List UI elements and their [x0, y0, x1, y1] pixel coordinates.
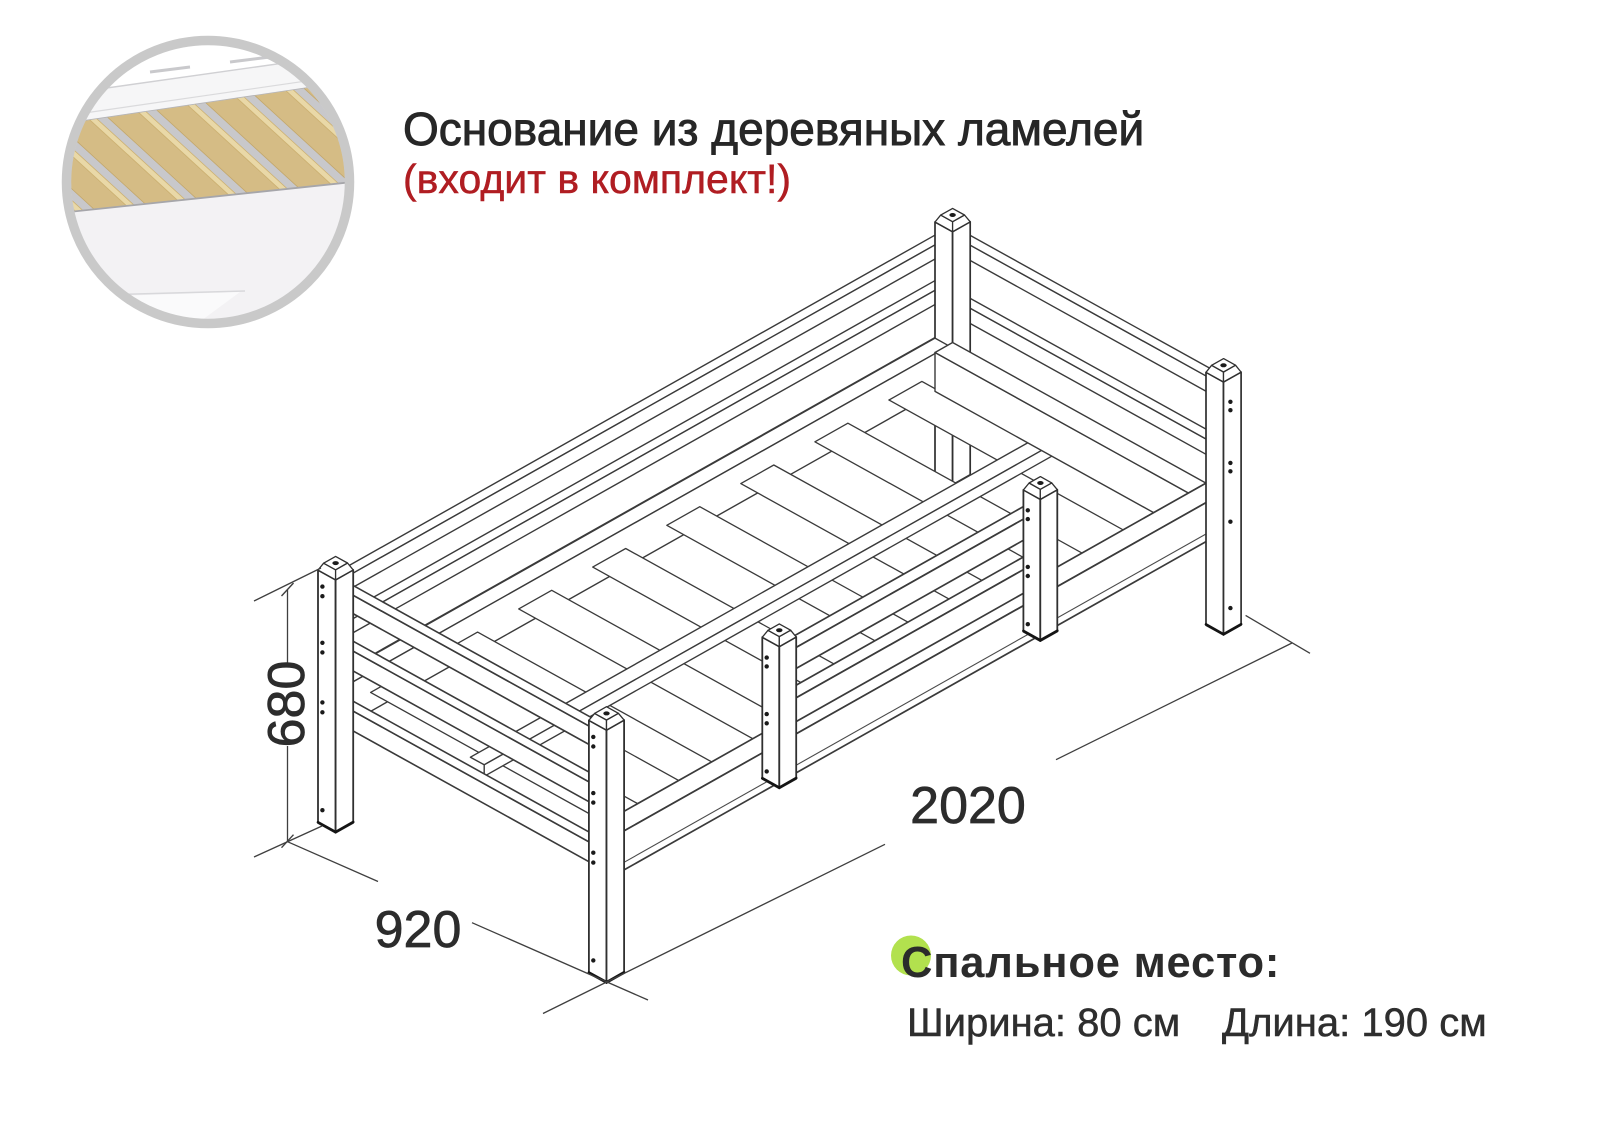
svg-text:Длина: 190 см: Длина: 190 см [1222, 1001, 1487, 1045]
svg-text:Ширина: 80 см: Ширина: 80 см [907, 1001, 1180, 1045]
svg-text:920: 920 [375, 901, 462, 959]
svg-text:(входит в комплект!): (входит в комплект!) [403, 156, 791, 202]
svg-text:Основание из деревяных ламелей: Основание из деревяных ламелей [403, 103, 1144, 155]
svg-text:680: 680 [258, 661, 316, 748]
svg-text:2020: 2020 [910, 777, 1026, 835]
svg-text:Спальное место:: Спальное место: [901, 939, 1280, 987]
